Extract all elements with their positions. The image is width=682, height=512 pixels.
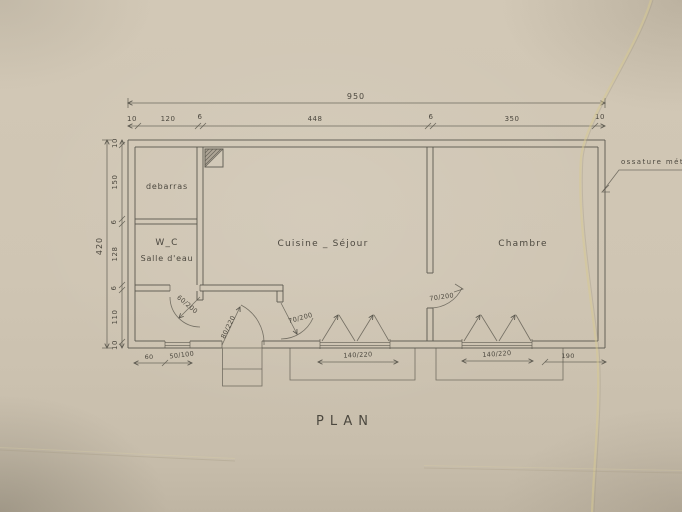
living-room-french-window (320, 315, 390, 346)
small-window (165, 343, 190, 346)
wall-structure-annotation: ossature mét (602, 158, 682, 192)
floor-plan-drawing: 60/200 80/220 70/200 70/200 (0, 0, 682, 512)
dim-top-6b: 6 (429, 113, 434, 121)
dim-top-10a: 10 (127, 115, 137, 123)
drawing-title: PLAN (316, 414, 374, 429)
dim-top-350: 350 (505, 115, 520, 123)
entry-step (223, 348, 263, 386)
room-label-wc: W_C (155, 238, 178, 248)
kitchen-door: 70/200 (281, 303, 313, 339)
dimension-top-total: 950 (128, 92, 605, 108)
dim-left-150: 150 (111, 175, 119, 190)
bedroom-door-size: 70/200 (429, 291, 455, 302)
dim-top-448: 448 (308, 115, 323, 123)
room-label-debarras: debarras (146, 182, 188, 191)
dim-left-6b: 6 (110, 285, 118, 290)
dim-140-220-b: 140/220 (482, 349, 512, 359)
dimension-window-living: 140/220 (318, 350, 398, 362)
dim-top-6a: 6 (198, 113, 203, 121)
room-label-salle-deau: Salle d'eau (141, 254, 194, 263)
photographed-paper-sheet: 60/200 80/220 70/200 70/200 (0, 0, 682, 512)
entry-door-size: 80/220 (219, 314, 237, 340)
dimension-left-segments: 10 150 6 128 6 110 10 (110, 138, 125, 350)
room-label-chambre: Chambre (498, 239, 547, 249)
entry-door: 80/220 (219, 305, 264, 345)
bedroom-door: 70/200 (429, 284, 463, 308)
dimension-top-segments: 10 120 6 448 6 350 10 (127, 113, 605, 129)
dim-left-6a: 6 (110, 219, 118, 224)
dim-left-110: 110 (111, 310, 119, 325)
wc-door-size: 60/200 (175, 293, 199, 315)
dim-top-120: 120 (161, 115, 176, 123)
dimension-left-total: 420 (95, 140, 112, 348)
bedroom-french-window (462, 315, 532, 346)
kitchen-door-size: 70/200 (287, 311, 313, 325)
wc-door: 60/200 (170, 293, 200, 327)
dim-60: 60 (145, 353, 154, 361)
room-label-cuisine-sejour: Cuisine _ Séjour (277, 238, 368, 249)
dim-420: 420 (95, 237, 104, 255)
dimension-window-bedroom: 140/220 (462, 349, 533, 361)
dim-50-100: 50/100 (169, 350, 194, 361)
dim-left-128: 128 (111, 247, 119, 262)
annotation-text: ossature mét (621, 158, 682, 166)
dim-left-10b: 10 (111, 340, 119, 350)
dim-950: 950 (347, 92, 365, 101)
dim-140-220-a: 140/220 (343, 350, 372, 360)
dim-190: 190 (561, 352, 574, 360)
dim-left-10a: 10 (111, 138, 119, 148)
chimney-duct-symbol (205, 149, 223, 167)
dimension-bottom-left: 60 50/100 (134, 350, 194, 366)
